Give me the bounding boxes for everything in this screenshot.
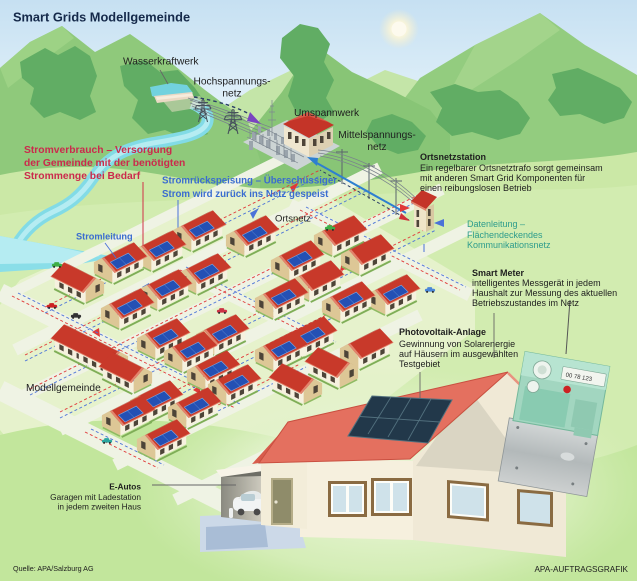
svg-text:Hochspannungs-: Hochspannungs-: [193, 77, 270, 88]
svg-text:Umspannwerk: Umspannwerk: [294, 108, 360, 119]
svg-text:der Gemeinde mit der benötigte: der Gemeinde mit der benötigten: [24, 158, 185, 169]
svg-text:intelligentes Messgerät in jed: intelligentes Messgerät in jedem: [472, 278, 601, 288]
svg-text:Flächendeckendes: Flächendeckendes: [467, 230, 543, 240]
svg-text:Ortsnetz: Ortsnetz: [275, 214, 311, 225]
svg-text:Photovoltaik-Anlage: Photovoltaik-Anlage: [399, 327, 486, 337]
svg-text:Haushalt zur Messung des aktue: Haushalt zur Messung des aktuellen: [472, 288, 617, 298]
svg-text:Garagen mit Ladestation: Garagen mit Ladestation: [50, 492, 141, 502]
svg-text:in jedem zweiten Haus: in jedem zweiten Haus: [58, 502, 141, 512]
svg-text:Smart Grids Modellgemeinde: Smart Grids Modellgemeinde: [13, 10, 190, 25]
svg-text:Quelle: APA/Salzburg AG: Quelle: APA/Salzburg AG: [13, 564, 94, 573]
svg-text:Strommenge bei Bedarf: Strommenge bei Bedarf: [24, 171, 141, 182]
svg-text:Ortsnetzstation: Ortsnetzstation: [420, 152, 486, 162]
svg-text:Gewinnung von Solarenergie: Gewinnung von Solarenergie: [399, 339, 515, 349]
svg-text:Kommunikationsnetz: Kommunikationsnetz: [467, 240, 551, 250]
svg-text:netz: netz: [367, 142, 386, 153]
svg-text:mit anderen Smart Grid Kompone: mit anderen Smart Grid Komponenten für: [420, 173, 585, 183]
svg-text:APA-AUFTRAGSGRAFIK: APA-AUFTRAGSGRAFIK: [534, 565, 628, 574]
svg-text:Stromrückspeisung – Überschüss: Stromrückspeisung – Überschüssiger: [162, 176, 337, 187]
svg-text:Modellgemeinde: Modellgemeinde: [26, 383, 101, 394]
svg-text:Mittelspannungs-: Mittelspannungs-: [338, 130, 416, 141]
svg-text:Datenleitung –: Datenleitung –: [467, 219, 525, 229]
svg-text:einen reibungslosen Betrieb: einen reibungslosen Betrieb: [420, 183, 532, 193]
svg-text:auf Häusern im ausgewählten: auf Häusern im ausgewählten: [399, 349, 518, 359]
svg-text:Testgebiet: Testgebiet: [399, 359, 441, 369]
svg-text:Stromleitung: Stromleitung: [76, 232, 133, 242]
svg-text:Strom wird zurück ins Netz ges: Strom wird zurück ins Netz gespeist: [162, 189, 329, 200]
svg-text:Smart Meter: Smart Meter: [472, 268, 525, 278]
svg-text:E-Autos: E-Autos: [109, 482, 141, 492]
svg-text:netz: netz: [222, 89, 241, 100]
svg-text:Stromverbrauch – Versorgung: Stromverbrauch – Versorgung: [24, 145, 172, 156]
svg-text:Betriebszustandes im Netz: Betriebszustandes im Netz: [472, 298, 580, 308]
svg-text:Ein regelbarer Ortsnetztrafo s: Ein regelbarer Ortsnetztrafo sorgt gemei…: [420, 163, 603, 173]
svg-text:Wasserkraftwerk: Wasserkraftwerk: [123, 57, 199, 68]
